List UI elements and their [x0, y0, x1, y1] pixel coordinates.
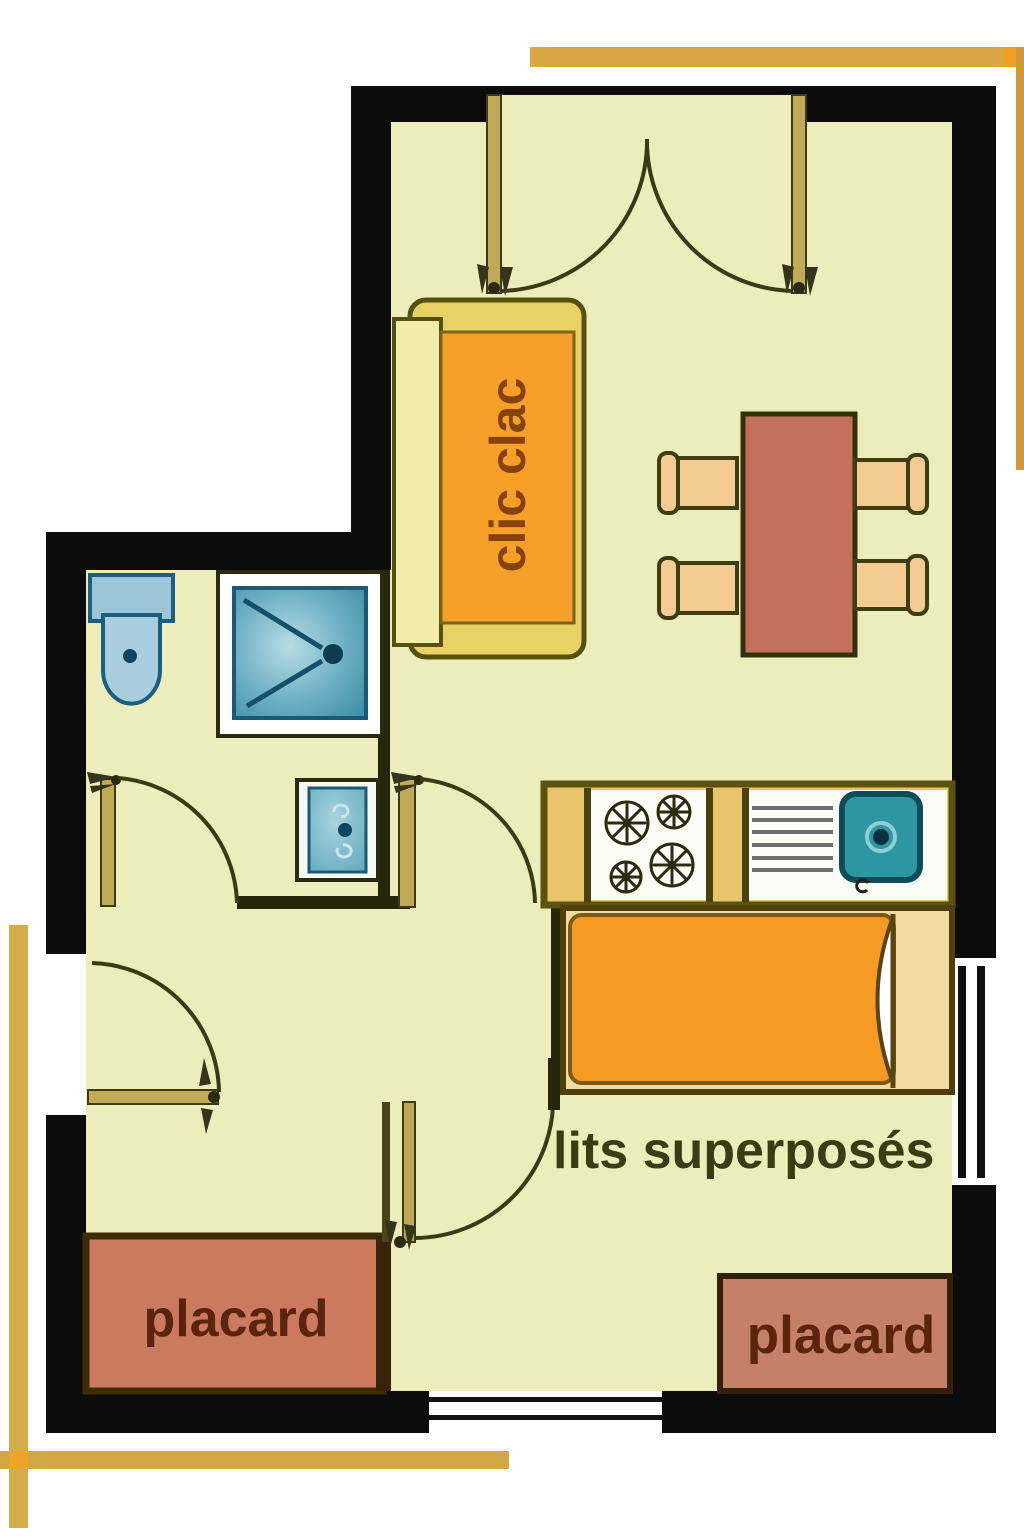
- svg-text:placard: placard: [144, 1290, 329, 1348]
- svg-text:lits superposés: lits superposés: [553, 1122, 934, 1180]
- svg-text:placard: placard: [747, 1306, 936, 1365]
- svg-text:clic clac: clic clac: [480, 378, 536, 573]
